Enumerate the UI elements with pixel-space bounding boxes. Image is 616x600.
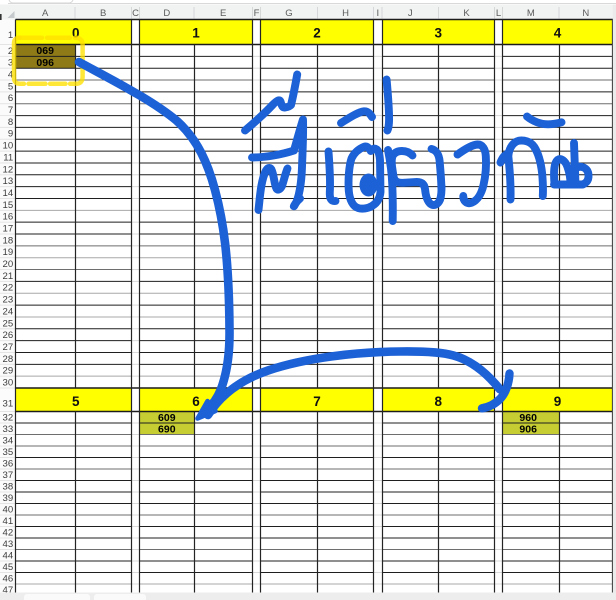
svg-text:4: 4 <box>554 26 562 41</box>
svg-text:22: 22 <box>3 283 14 294</box>
svg-text:43: 43 <box>3 539 14 550</box>
svg-text:30: 30 <box>3 378 14 389</box>
svg-text:20: 20 <box>3 259 14 270</box>
svg-text:25: 25 <box>3 318 14 329</box>
svg-text:C: C <box>132 8 139 19</box>
svg-text:3: 3 <box>434 26 442 41</box>
svg-text:L: L <box>496 8 501 19</box>
svg-text:36: 36 <box>3 459 14 470</box>
svg-text:27: 27 <box>3 342 14 353</box>
svg-text:K: K <box>463 8 470 19</box>
svg-text:19: 19 <box>3 247 14 258</box>
svg-text:H: H <box>342 8 349 19</box>
svg-text:18: 18 <box>3 235 14 246</box>
svg-text:45: 45 <box>3 562 14 573</box>
svg-text:16: 16 <box>3 212 14 223</box>
svg-text:A: A <box>42 8 49 19</box>
svg-text:906: 906 <box>519 423 537 435</box>
svg-text:7: 7 <box>313 394 321 409</box>
svg-text:6: 6 <box>192 394 200 409</box>
svg-text:690: 690 <box>158 423 176 435</box>
svg-text:44: 44 <box>3 551 14 562</box>
svg-text:9: 9 <box>8 129 13 140</box>
svg-text:28: 28 <box>3 354 14 365</box>
svg-text:J: J <box>408 8 413 19</box>
svg-text:37: 37 <box>3 470 14 481</box>
svg-text:40: 40 <box>3 505 14 516</box>
svg-text:M: M <box>527 8 535 19</box>
svg-text:1: 1 <box>8 30 13 41</box>
svg-text:11: 11 <box>3 152 13 163</box>
svg-text:39: 39 <box>3 493 14 504</box>
svg-text:7: 7 <box>8 105 13 116</box>
svg-text:960: 960 <box>519 412 537 424</box>
svg-text:41: 41 <box>3 516 14 527</box>
svg-text:26: 26 <box>3 330 14 341</box>
svg-text:D: D <box>163 8 170 19</box>
svg-text:N: N <box>582 8 589 19</box>
svg-text:6: 6 <box>8 93 13 104</box>
svg-text:29: 29 <box>3 366 14 377</box>
svg-text:33: 33 <box>3 424 14 435</box>
svg-text:609: 609 <box>158 412 176 424</box>
svg-text:35: 35 <box>3 447 14 458</box>
svg-text:9: 9 <box>554 394 562 409</box>
svg-text:1: 1 <box>192 26 200 41</box>
svg-text:2: 2 <box>313 26 321 41</box>
svg-text:5: 5 <box>8 81 13 92</box>
svg-text:17: 17 <box>3 224 14 235</box>
svg-text:F: F <box>254 8 260 19</box>
svg-text:24: 24 <box>3 306 14 317</box>
svg-text:14: 14 <box>3 188 14 199</box>
svg-text:069: 069 <box>36 45 54 57</box>
svg-text:B: B <box>100 8 106 19</box>
svg-text:42: 42 <box>3 528 14 539</box>
svg-text:I: I <box>376 8 379 19</box>
svg-text:12: 12 <box>3 164 14 175</box>
svg-text:15: 15 <box>3 200 14 211</box>
svg-text:23: 23 <box>3 295 14 306</box>
svg-text:38: 38 <box>3 482 14 493</box>
svg-text:8: 8 <box>8 117 13 128</box>
svg-text:13: 13 <box>3 176 14 187</box>
svg-text:096: 096 <box>36 57 54 69</box>
svg-text:G: G <box>285 8 292 19</box>
svg-text:21: 21 <box>3 271 14 282</box>
svg-text:8: 8 <box>434 394 442 409</box>
svg-text:5: 5 <box>72 394 80 409</box>
svg-text:46: 46 <box>3 574 14 585</box>
svg-text:10: 10 <box>3 141 14 152</box>
svg-text:31: 31 <box>3 398 14 409</box>
svg-text:34: 34 <box>3 436 14 447</box>
svg-text:E: E <box>220 8 226 19</box>
svg-text:32: 32 <box>3 413 14 424</box>
